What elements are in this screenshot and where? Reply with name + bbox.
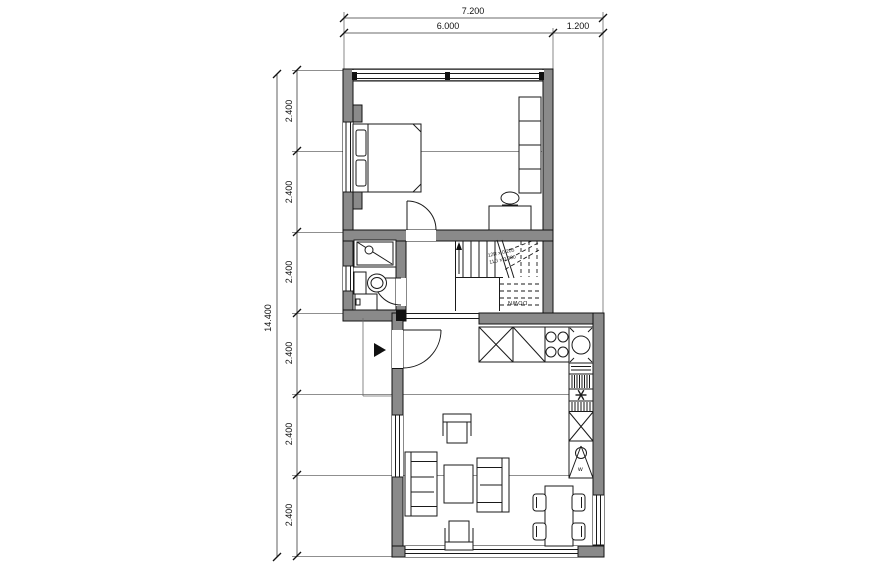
kitchen-opening-header: [406, 314, 479, 319]
dim-left-segment-1: 2.400: [284, 100, 294, 123]
desk: [489, 206, 531, 230]
toilet-tank: [354, 272, 366, 294]
toilet-bowl: [368, 274, 387, 292]
side-chair: [449, 521, 469, 542]
dining-chair: [572, 523, 585, 540]
kitchen-sink: [569, 327, 593, 363]
shower-drain: [365, 246, 373, 254]
dim-left-segment-3: 2.400: [284, 261, 294, 284]
dining-set: [533, 486, 585, 546]
stair-direction-arrow-icon: [456, 242, 462, 250]
dim-top-segment-2: 1.200: [567, 21, 590, 31]
dim-left-segment-4: 2.400: [284, 342, 294, 365]
entry-arrow-icon: [374, 343, 386, 357]
dim-top-segment-1: 6.000: [437, 21, 460, 31]
pillow: [356, 130, 366, 156]
floor-plan-drawing: 12R x 0.205 11G x 0.300 DOWN: [0, 0, 874, 566]
dim-left-segment-6: 2.400: [284, 504, 294, 527]
bathroom-fixtures: [354, 240, 396, 310]
dim-left-segment-2: 2.400: [284, 181, 294, 204]
dining-chair: [533, 494, 546, 511]
dim-top-overall: 7.200: [462, 6, 485, 16]
dining-chair: [533, 523, 546, 540]
dining-table: [545, 486, 573, 546]
bedroom-furniture: [353, 97, 541, 230]
dimension-labels: 7.200 6.000 1.200 14.400 2.400 2.400 2.4…: [263, 6, 589, 526]
dim-left-overall: 14.400: [263, 304, 273, 332]
washer-label: w: [577, 466, 583, 473]
wardrobe: [519, 97, 541, 121]
staircase: 12R x 0.205 11G x 0.300 DOWN: [455, 240, 542, 311]
entry-porch: [363, 318, 392, 396]
stool: [501, 192, 519, 204]
pillow: [356, 160, 366, 186]
coffee-table: [444, 465, 473, 503]
kitchen-units: w: [479, 327, 593, 478]
dining-chair: [572, 494, 585, 511]
dimension-lines: [273, 14, 607, 561]
side-chair: [443, 414, 471, 422]
floor-plan-canvas: 12R x 0.205 11G x 0.300 DOWN: [0, 0, 874, 566]
living-room-furniture: [405, 414, 509, 550]
dim-left-segment-5: 2.400: [284, 423, 294, 446]
stair-down-label: DOWN: [508, 299, 527, 305]
